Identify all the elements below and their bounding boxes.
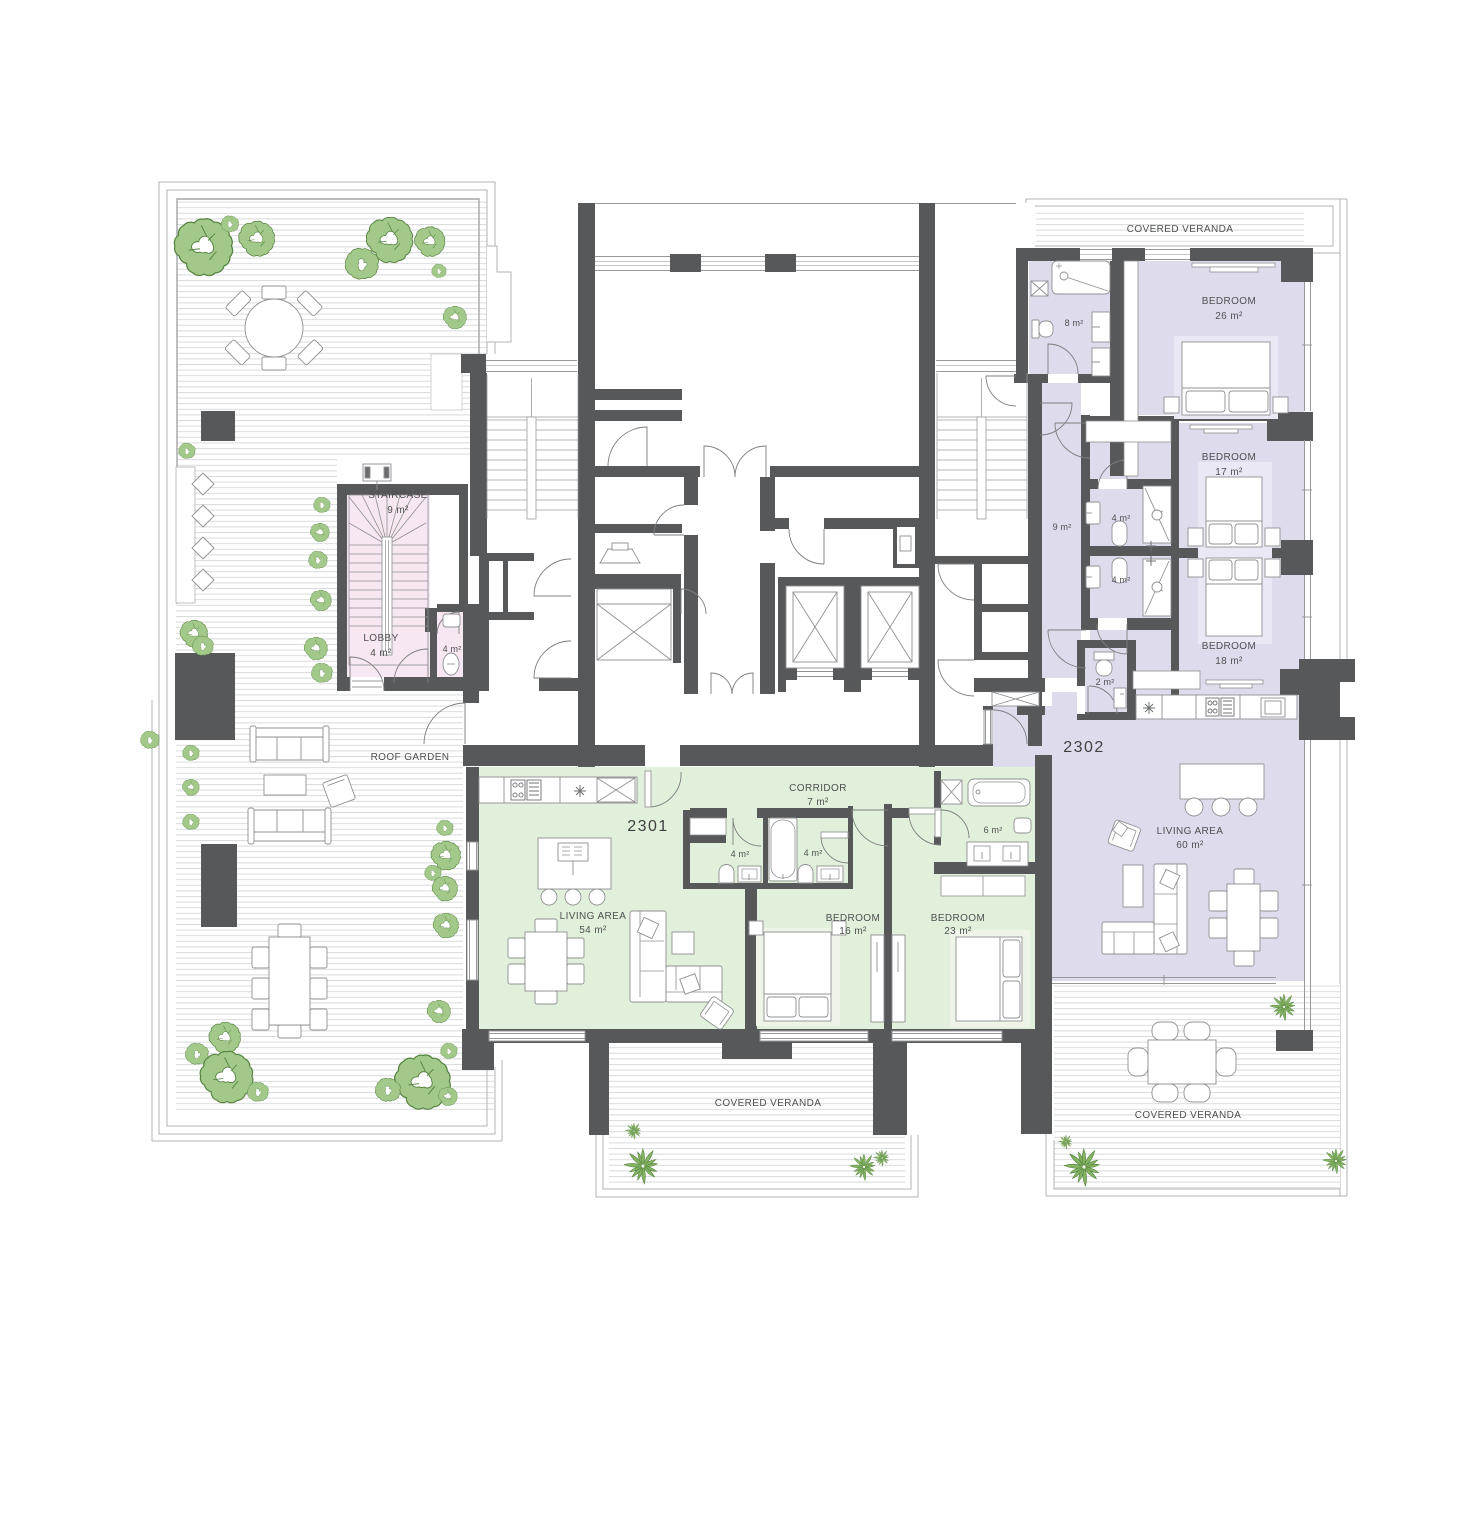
svg-text:4 m²: 4 m² xyxy=(1112,575,1131,585)
svg-text:2301: 2301 xyxy=(627,818,669,835)
svg-text:2 m²: 2 m² xyxy=(1096,677,1115,687)
svg-text:STAIRCASE: STAIRCASE xyxy=(368,490,428,501)
svg-text:4 m²: 4 m² xyxy=(370,648,392,659)
svg-text:CORRIDOR: CORRIDOR xyxy=(789,783,847,794)
svg-text:LIVING AREA: LIVING AREA xyxy=(1157,826,1224,837)
svg-text:BEDROOM: BEDROOM xyxy=(1202,452,1256,463)
svg-text:COVERED VERANDA: COVERED VERANDA xyxy=(715,1098,822,1109)
svg-text:BEDROOM: BEDROOM xyxy=(1202,296,1256,307)
svg-text:60 m²: 60 m² xyxy=(1176,840,1204,851)
svg-text:23 m²: 23 m² xyxy=(944,926,972,937)
svg-text:BEDROOM: BEDROOM xyxy=(1202,641,1256,652)
svg-text:ROOF GARDEN: ROOF GARDEN xyxy=(371,752,450,763)
svg-text:26 m²: 26 m² xyxy=(1215,311,1243,322)
svg-text:6 m²: 6 m² xyxy=(984,825,1003,835)
svg-text:9 m²: 9 m² xyxy=(387,505,409,516)
svg-text:4 m²: 4 m² xyxy=(731,849,750,859)
svg-text:BEDROOM: BEDROOM xyxy=(931,913,985,924)
svg-text:4 m²: 4 m² xyxy=(1112,513,1131,523)
svg-text:COVERED VERANDA: COVERED VERANDA xyxy=(1127,224,1234,235)
svg-text:4 m²: 4 m² xyxy=(443,644,462,654)
svg-text:2302: 2302 xyxy=(1063,739,1105,756)
svg-text:16 m²: 16 m² xyxy=(839,926,867,937)
svg-text:54 m²: 54 m² xyxy=(579,925,607,936)
svg-text:17 m²: 17 m² xyxy=(1215,467,1243,478)
svg-text:7 m²: 7 m² xyxy=(807,797,829,808)
svg-text:18 m²: 18 m² xyxy=(1215,656,1243,667)
svg-text:8 m²: 8 m² xyxy=(1065,318,1084,328)
svg-text:BEDROOM: BEDROOM xyxy=(826,913,880,924)
svg-text:COVERED VERANDA: COVERED VERANDA xyxy=(1135,1110,1242,1121)
svg-text:LIVING AREA: LIVING AREA xyxy=(560,911,627,922)
svg-text:LOBBY: LOBBY xyxy=(363,633,398,644)
svg-text:4 m²: 4 m² xyxy=(804,848,823,858)
svg-text:9 m²: 9 m² xyxy=(1053,522,1072,532)
